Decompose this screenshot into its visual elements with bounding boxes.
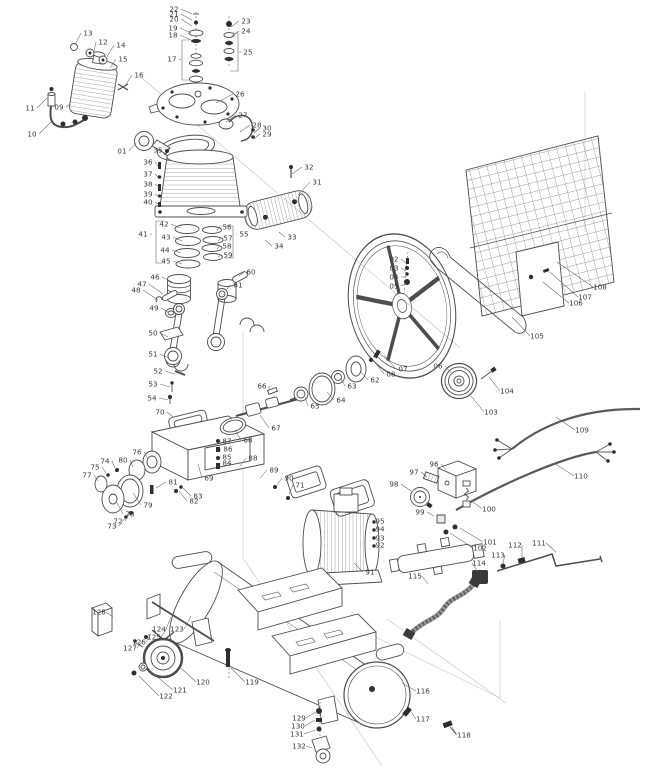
part-callout-42: 42 xyxy=(159,220,180,229)
svg-text:41: 41 xyxy=(138,230,147,239)
svg-text:73: 73 xyxy=(107,522,116,531)
part-callout-09: 09 xyxy=(54,103,70,112)
svg-text:71: 71 xyxy=(295,481,304,490)
crankcase-drawing xyxy=(152,409,264,480)
svg-text:113: 113 xyxy=(491,551,505,560)
part-callout-100: 100 xyxy=(472,501,496,514)
svg-text:28: 28 xyxy=(252,121,262,130)
part-callout-10: 10 xyxy=(27,121,52,139)
part-callout-89: 89 xyxy=(260,466,279,478)
svg-text:19: 19 xyxy=(168,24,178,33)
svg-text:01: 01 xyxy=(117,147,126,156)
svg-text:104: 104 xyxy=(500,387,514,396)
svg-text:12: 12 xyxy=(98,38,107,47)
part-callout-47: 47 xyxy=(137,280,163,294)
part-callout-19: 19 xyxy=(168,24,191,33)
svg-text:22: 22 xyxy=(169,5,178,14)
svg-text:38: 38 xyxy=(143,180,153,189)
svg-text:115: 115 xyxy=(408,572,422,581)
svg-text:121: 121 xyxy=(173,686,187,695)
svg-text:45: 45 xyxy=(161,257,170,266)
svg-text:50: 50 xyxy=(148,329,158,338)
svg-text:67: 67 xyxy=(271,424,280,433)
svg-text:31: 31 xyxy=(312,178,321,187)
part-callout-12: 12 xyxy=(94,38,108,51)
part-callout-113: 113 xyxy=(491,551,505,563)
part-callout-83: 83 xyxy=(183,488,203,501)
svg-text:70: 70 xyxy=(155,408,165,417)
svg-text:131: 131 xyxy=(290,730,304,739)
part-callout-98: 98 xyxy=(389,480,411,491)
part-callout-17: 17 xyxy=(167,55,181,64)
svg-text:122: 122 xyxy=(159,692,173,701)
part-callout-43: 43 xyxy=(161,233,182,242)
svg-text:111: 111 xyxy=(532,539,546,548)
part-callout-109: 109 xyxy=(556,417,589,435)
svg-text:34: 34 xyxy=(274,242,284,251)
svg-text:128: 128 xyxy=(92,608,106,617)
svg-text:11: 11 xyxy=(25,104,34,113)
svg-text:123: 123 xyxy=(170,625,184,634)
svg-text:78: 78 xyxy=(125,510,135,519)
svg-text:59: 59 xyxy=(223,251,233,260)
part-callout-37: 37 xyxy=(143,170,158,179)
part-callout-32: 32 xyxy=(292,163,314,174)
hub-bearings-drawing xyxy=(268,356,366,405)
part-callout-66: 66 xyxy=(257,382,269,391)
part-callout-119: 119 xyxy=(231,668,259,687)
svg-text:03: 03 xyxy=(389,264,398,273)
svg-text:33: 33 xyxy=(287,233,296,242)
svg-text:24: 24 xyxy=(241,27,251,36)
part-callout-22: 22 xyxy=(169,5,192,14)
svg-text:35: 35 xyxy=(153,146,162,155)
svg-text:17: 17 xyxy=(167,55,176,64)
part-callout-04: 04 xyxy=(389,273,406,282)
svg-text:58: 58 xyxy=(222,242,232,251)
svg-text:103: 103 xyxy=(484,408,498,417)
svg-text:75: 75 xyxy=(90,463,99,472)
part-callout-41: 41 xyxy=(138,230,152,239)
svg-text:86: 86 xyxy=(223,445,233,454)
part-callout-114: 114 xyxy=(472,559,486,572)
svg-text:23: 23 xyxy=(241,17,250,26)
part-callout-104: 104 xyxy=(489,377,514,396)
part-callout-87: 87 xyxy=(220,437,232,446)
svg-text:09: 09 xyxy=(54,103,64,112)
svg-text:42: 42 xyxy=(159,220,168,229)
svg-text:36: 36 xyxy=(143,158,153,167)
svg-text:110: 110 xyxy=(574,472,588,481)
part-callout-11: 11 xyxy=(25,98,47,113)
svg-text:40: 40 xyxy=(143,198,153,207)
part-callout-01: 01 xyxy=(117,143,136,156)
svg-text:27: 27 xyxy=(238,111,247,120)
pressure-switch-drawing xyxy=(387,461,485,582)
svg-text:65: 65 xyxy=(310,402,319,411)
svg-text:06: 06 xyxy=(433,362,443,371)
part-callout-36: 36 xyxy=(143,158,158,167)
svg-text:54: 54 xyxy=(147,394,157,403)
part-callout-49: 49 xyxy=(149,304,168,313)
part-callout-81: 81 xyxy=(156,478,178,488)
part-callout-105: 105 xyxy=(512,317,544,341)
svg-text:117: 117 xyxy=(416,715,430,724)
part-callout-110: 110 xyxy=(554,463,588,481)
svg-text:99: 99 xyxy=(415,508,425,517)
svg-text:37: 37 xyxy=(143,170,152,179)
svg-text:109: 109 xyxy=(575,426,589,435)
part-callout-85: 85 xyxy=(220,453,232,462)
part-callout-111: 111 xyxy=(532,539,556,552)
part-callout-115: 115 xyxy=(408,572,428,584)
svg-text:79: 79 xyxy=(143,501,153,510)
part-callout-33: 33 xyxy=(279,232,297,242)
svg-text:132: 132 xyxy=(292,742,306,751)
svg-text:97: 97 xyxy=(409,468,418,477)
svg-text:80: 80 xyxy=(118,456,128,465)
part-callout-122: 122 xyxy=(139,676,173,701)
svg-text:08: 08 xyxy=(386,370,396,379)
svg-text:81: 81 xyxy=(168,478,177,487)
svg-text:108: 108 xyxy=(593,283,607,292)
part-callout-70: 70 xyxy=(155,408,173,417)
part-callout-13: 13 xyxy=(75,29,93,45)
svg-text:118: 118 xyxy=(457,731,471,740)
svg-text:60: 60 xyxy=(246,268,256,277)
svg-text:116: 116 xyxy=(416,687,430,696)
svg-text:112: 112 xyxy=(508,541,522,550)
svg-text:48: 48 xyxy=(131,286,141,295)
svg-text:77: 77 xyxy=(82,471,91,480)
part-callout-112: 112 xyxy=(508,541,522,557)
part-callout-120: 120 xyxy=(181,668,210,687)
svg-text:56: 56 xyxy=(222,223,232,232)
belt-guard-drawing xyxy=(466,136,614,316)
svg-text:95: 95 xyxy=(375,517,384,526)
svg-text:85: 85 xyxy=(222,453,231,462)
svg-text:94: 94 xyxy=(375,525,385,534)
svg-text:10: 10 xyxy=(27,130,37,139)
svg-text:13: 13 xyxy=(83,29,92,38)
svg-text:87: 87 xyxy=(222,437,231,446)
svg-text:32: 32 xyxy=(304,163,313,172)
part-callout-99: 99 xyxy=(415,508,434,517)
valve-stack-drawing xyxy=(189,12,234,92)
group-bracket-17 xyxy=(182,40,190,80)
aftercooler-drawing xyxy=(242,165,315,232)
svg-text:93: 93 xyxy=(375,534,384,543)
svg-text:05: 05 xyxy=(389,282,398,291)
svg-text:63: 63 xyxy=(347,382,356,391)
svg-text:16: 16 xyxy=(134,71,144,80)
svg-text:119: 119 xyxy=(245,678,259,687)
svg-text:43: 43 xyxy=(161,233,170,242)
svg-text:83: 83 xyxy=(193,492,202,501)
svg-text:74: 74 xyxy=(100,457,110,466)
svg-text:88: 88 xyxy=(248,454,258,463)
svg-text:102: 102 xyxy=(473,544,487,553)
svg-text:96: 96 xyxy=(429,460,439,469)
svg-text:76: 76 xyxy=(132,448,142,457)
part-callout-23: 23 xyxy=(231,17,251,27)
part-callout-67: 67 xyxy=(260,415,281,433)
motor-pulley-drawing xyxy=(438,360,497,402)
svg-text:127: 127 xyxy=(123,644,137,653)
part-callout-38: 38 xyxy=(143,180,159,189)
part-callout-131: 131 xyxy=(290,730,316,739)
svg-text:07: 07 xyxy=(398,365,407,374)
svg-text:69: 69 xyxy=(204,474,214,483)
part-callout-52: 52 xyxy=(153,367,175,376)
svg-text:98: 98 xyxy=(389,480,399,489)
exploded-parts-diagram: 0102030405060708091011121314151617181920… xyxy=(0,0,646,768)
svg-text:114: 114 xyxy=(472,559,486,568)
svg-text:55: 55 xyxy=(239,230,248,239)
svg-text:100: 100 xyxy=(482,505,496,514)
svg-text:14: 14 xyxy=(116,41,126,50)
svg-text:68: 68 xyxy=(243,436,253,445)
svg-text:02: 02 xyxy=(389,255,398,264)
svg-text:91: 91 xyxy=(365,568,374,577)
part-callout-40: 40 xyxy=(143,198,160,207)
svg-text:90: 90 xyxy=(284,474,294,483)
part-callout-117: 117 xyxy=(411,712,430,724)
svg-text:46: 46 xyxy=(150,273,160,282)
cylinder-block-drawing xyxy=(155,150,247,217)
wires-drawing xyxy=(456,409,640,510)
part-callout-103: 103 xyxy=(471,396,498,417)
part-callout-53: 53 xyxy=(148,380,170,389)
part-callout-25: 25 xyxy=(239,48,253,57)
svg-text:64: 64 xyxy=(336,396,346,405)
part-callout-03: 03 xyxy=(389,264,406,273)
svg-text:04: 04 xyxy=(389,273,399,282)
svg-text:30: 30 xyxy=(262,124,272,133)
svg-text:53: 53 xyxy=(148,380,157,389)
diagram-canvas: 0102030405060708091011121314151617181920… xyxy=(0,0,646,768)
svg-text:49: 49 xyxy=(149,304,159,313)
svg-text:52: 52 xyxy=(153,367,162,376)
part-callout-34: 34 xyxy=(265,240,284,251)
part-callout-74: 74 xyxy=(100,457,115,468)
svg-text:26: 26 xyxy=(235,90,245,99)
svg-text:44: 44 xyxy=(160,246,170,255)
part-callout-132: 132 xyxy=(292,742,312,751)
part-callout-02: 02 xyxy=(389,255,406,264)
part-callout-05: 05 xyxy=(389,282,406,291)
svg-text:61: 61 xyxy=(233,281,242,290)
svg-text:89: 89 xyxy=(269,466,279,475)
svg-text:15: 15 xyxy=(118,55,127,64)
svg-text:120: 120 xyxy=(196,678,210,687)
part-callout-55: 55 xyxy=(236,230,249,239)
svg-text:66: 66 xyxy=(257,382,267,391)
part-callout-124: 124 xyxy=(152,617,171,634)
svg-text:25: 25 xyxy=(243,48,252,57)
svg-text:107: 107 xyxy=(578,293,592,302)
svg-text:105: 105 xyxy=(530,332,544,341)
part-callout-56: 56 xyxy=(217,223,232,232)
part-callout-16: 16 xyxy=(125,71,144,86)
part-callout-54: 54 xyxy=(147,394,168,403)
svg-text:62: 62 xyxy=(370,376,379,385)
svg-text:51: 51 xyxy=(148,350,157,359)
outlet-elbow-drawing xyxy=(219,115,255,141)
